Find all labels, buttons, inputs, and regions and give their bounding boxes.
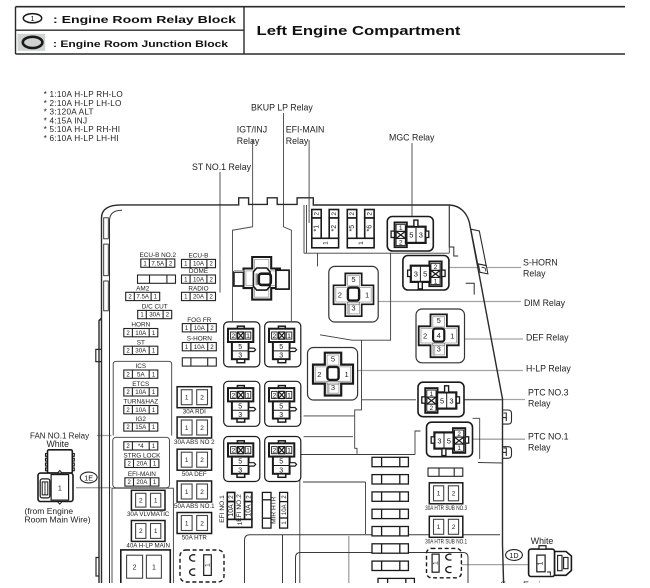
svg-text:*6: *6 [367, 225, 374, 232]
svg-text:1: 1 [185, 520, 189, 527]
svg-text:2: 2 [331, 212, 338, 216]
svg-text:5: 5 [351, 275, 355, 284]
svg-text:EFI-MAIN: EFI-MAIN [128, 471, 156, 478]
svg-text:HORN: HORN [131, 322, 150, 329]
svg-text:TURN&HAZ: TURN&HAZ [123, 399, 158, 406]
svg-text:5: 5 [423, 270, 427, 279]
svg-text:2: 2 [245, 495, 252, 499]
svg-text:2: 2 [423, 332, 427, 341]
svg-text:5: 5 [440, 396, 444, 405]
svg-text:EFI NO.2: EFI NO.2 [236, 494, 243, 522]
svg-text:30A HTR SUB NO.1: 30A HTR SUB NO.1 [425, 538, 467, 545]
svg-text:10A: 10A [194, 325, 206, 332]
svg-text:30A RDI: 30A RDI [183, 409, 206, 416]
svg-text:1: 1 [58, 484, 62, 493]
svg-text:2: 2 [338, 291, 342, 300]
svg-text:*5: *5 [349, 225, 356, 232]
svg-text:White: White [47, 439, 70, 449]
svg-text:15A: 15A [135, 424, 147, 431]
svg-text:1: 1 [434, 278, 438, 285]
svg-text:10A: 10A [282, 504, 288, 515]
svg-text:1E: 1E [84, 473, 93, 482]
svg-text:2: 2 [399, 239, 403, 246]
svg-text:AM2: AM2 [136, 286, 150, 293]
svg-text:* 4:15A INJ: * 4:15A INJ [44, 116, 88, 125]
svg-text:1: 1 [365, 291, 369, 300]
svg-text:10A: 10A [193, 276, 205, 283]
svg-text:1: 1 [154, 498, 158, 505]
svg-text:* 3:120A ALT: * 3:120A ALT [44, 108, 94, 117]
svg-text:2: 2 [452, 524, 456, 531]
svg-text:20A: 20A [136, 479, 148, 486]
svg-text:1: 1 [204, 563, 211, 567]
svg-text:DEF Relay: DEF Relay [526, 333, 569, 343]
svg-text:3: 3 [414, 270, 418, 279]
svg-text:H-LP Relay: H-LP Relay [526, 364, 571, 374]
svg-text:1: 1 [432, 561, 439, 565]
svg-text:Relay: Relay [237, 136, 260, 146]
svg-text:7.5A: 7.5A [136, 294, 150, 301]
svg-text:2: 2 [430, 405, 434, 412]
svg-text:ECU-B: ECU-B [189, 253, 209, 260]
svg-text:1: 1 [437, 491, 441, 498]
svg-text:1: 1 [185, 395, 189, 402]
svg-text:FOG FR: FOG FR [187, 317, 212, 324]
svg-text:30A: 30A [149, 312, 161, 319]
svg-text:2: 2 [452, 491, 456, 498]
svg-text:2: 2 [200, 425, 204, 432]
svg-text:1: 1 [154, 528, 158, 535]
svg-text:1: 1 [30, 14, 34, 23]
svg-text:STRG LOCK: STRG LOCK [123, 452, 161, 459]
svg-text:ST: ST [137, 339, 145, 346]
svg-text:1: 1 [358, 241, 365, 245]
svg-text:MGC Relay: MGC Relay [389, 133, 435, 143]
svg-text:50A ABS NO.1: 50A ABS NO.1 [174, 503, 215, 510]
svg-text:30A ABS NO 2: 30A ABS NO 2 [174, 439, 215, 446]
svg-text:RADIO: RADIO [188, 286, 208, 293]
svg-text:* 5:10A H-LP RH-HI: * 5:10A H-LP RH-HI [44, 125, 121, 134]
svg-text:2: 2 [367, 212, 374, 216]
svg-text:1: 1 [322, 241, 329, 245]
svg-text:2: 2 [200, 457, 204, 464]
svg-text:: Engine Room Relay Block: : Engine Room Relay Block [53, 14, 237, 25]
svg-text:Room Main Wire): Room Main Wire) [25, 514, 91, 524]
svg-text:5: 5 [447, 436, 451, 445]
svg-text:ICS: ICS [135, 363, 146, 370]
svg-text:EFI-MAIN: EFI-MAIN [286, 125, 325, 135]
svg-text:2: 2 [139, 528, 143, 535]
svg-text:5: 5 [331, 354, 335, 363]
svg-text:*2: *2 [331, 225, 338, 232]
svg-text:1: 1 [185, 425, 189, 432]
svg-text:1: 1 [437, 524, 441, 531]
svg-text:* 2:10A H-LP LH-LO: * 2:10A H-LP LH-LO [44, 99, 122, 108]
svg-text:: Engine Room Junction Block: : Engine Room Junction Block [53, 39, 229, 49]
svg-text:*1: *1 [314, 225, 321, 232]
svg-text:Relay: Relay [528, 443, 551, 453]
svg-text:5A: 5A [137, 371, 145, 378]
svg-text:7.5A: 7.5A [151, 260, 165, 267]
svg-text:20A: 20A [193, 294, 205, 301]
svg-text:IGT/INJ: IGT/INJ [237, 125, 267, 135]
svg-text:30A: 30A [135, 348, 147, 355]
svg-text:MIR HTR: MIR HTR [271, 496, 278, 524]
svg-text:10A: 10A [245, 504, 252, 517]
svg-text:10A: 10A [193, 261, 205, 268]
svg-text:5: 5 [437, 316, 441, 325]
svg-text:2: 2 [133, 565, 137, 572]
svg-text:2: 2 [139, 498, 143, 505]
svg-text:4: 4 [437, 331, 441, 340]
svg-text:PTC NO.3: PTC NO.3 [528, 388, 569, 398]
svg-text:IG2: IG2 [136, 416, 147, 423]
svg-text:ST NO.1 Relay: ST NO.1 Relay [192, 162, 252, 172]
svg-text:* 6:10A H-LP LH-HI: * 6:10A H-LP LH-HI [44, 134, 119, 143]
svg-text:2: 2 [228, 495, 235, 499]
svg-text:1: 1 [185, 489, 189, 496]
svg-text:2: 2 [200, 489, 204, 496]
svg-text:S-HORN: S-HORN [187, 336, 213, 343]
svg-text:Left Engine Compartment: Left Engine Compartment [257, 24, 461, 39]
svg-text:BKUP LP Relay: BKUP LP Relay [251, 103, 313, 113]
svg-text:1: 1 [344, 370, 348, 379]
svg-text:50A DEF: 50A DEF [182, 471, 207, 478]
svg-text:1: 1 [185, 457, 189, 464]
svg-text:1D: 1D [509, 551, 518, 560]
svg-text:10A: 10A [194, 344, 206, 351]
svg-text:Relay: Relay [523, 269, 546, 279]
svg-text:* 1:10A H-LP RH-LO: * 1:10A H-LP RH-LO [44, 90, 123, 99]
svg-text:3: 3 [419, 231, 423, 240]
svg-text:5: 5 [409, 231, 413, 240]
svg-text:DIM Relay: DIM Relay [524, 298, 566, 308]
svg-text:DOME: DOME [189, 268, 208, 275]
svg-text:EFI NO.1: EFI NO.1 [219, 495, 226, 523]
svg-text:PTC NO.1: PTC NO.1 [528, 432, 569, 442]
svg-text:2: 2 [317, 370, 321, 379]
svg-text:ECU-B NO.2: ECU-B NO.2 [140, 252, 177, 259]
svg-text:2: 2 [200, 520, 204, 527]
svg-text:White: White [531, 536, 554, 546]
svg-text:3: 3 [449, 396, 453, 405]
svg-text:1: 1 [457, 445, 461, 452]
svg-text:1: 1 [152, 565, 156, 572]
svg-text:*4: *4 [138, 443, 144, 450]
svg-text:Relay: Relay [528, 399, 551, 409]
svg-text:3: 3 [437, 436, 441, 445]
svg-text:1: 1 [538, 561, 545, 565]
svg-text:ETCS: ETCS [132, 381, 149, 388]
svg-text:S-HORN: S-HORN [523, 258, 558, 268]
svg-text:40A H-LP MAIN: 40A H-LP MAIN [126, 542, 170, 549]
svg-text:2: 2 [200, 395, 204, 402]
svg-text:D/C CUT: D/C CUT [142, 304, 168, 311]
svg-text:30A VLVMATIC: 30A VLVMATIC [127, 511, 170, 518]
svg-text:10A: 10A [228, 504, 235, 517]
svg-text:10A: 10A [135, 330, 147, 337]
svg-text:10A: 10A [135, 407, 147, 414]
svg-text:20A: 20A [136, 461, 148, 468]
svg-text:10A: 10A [135, 389, 147, 396]
svg-text:50A HTR: 50A HTR [182, 535, 208, 542]
svg-text:30A HTR SUB NO.3: 30A HTR SUB NO.3 [425, 505, 467, 512]
svg-text:1: 1 [450, 332, 454, 341]
svg-text:2: 2 [349, 212, 356, 216]
svg-text:2: 2 [314, 212, 321, 216]
svg-text:Relay: Relay [286, 136, 309, 146]
